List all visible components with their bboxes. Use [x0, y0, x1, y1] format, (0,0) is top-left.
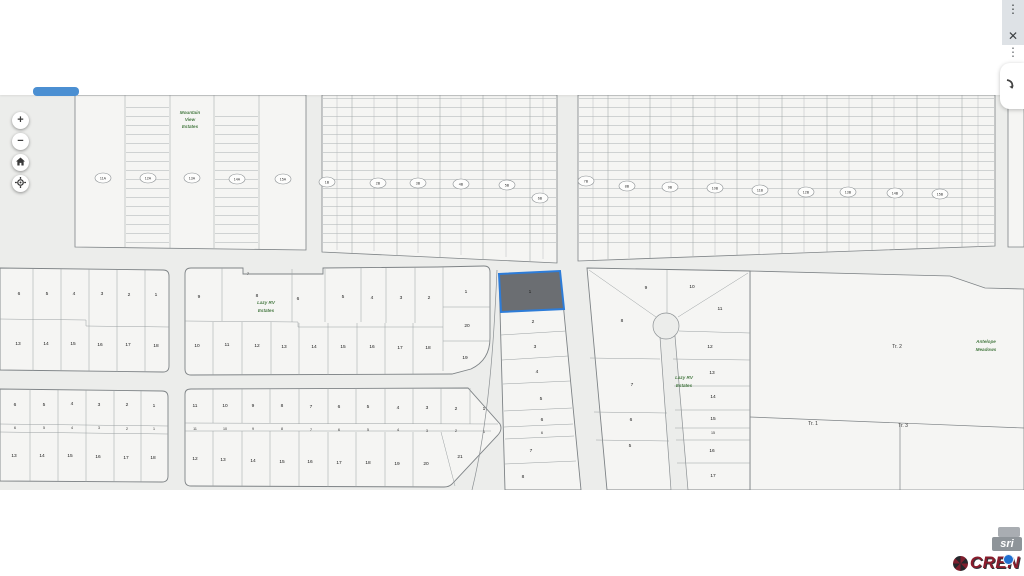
- strip-label: 11A: [100, 176, 107, 180]
- lot-number: 8: [621, 318, 624, 324]
- home-button[interactable]: [12, 154, 29, 171]
- subdivision-label: Antelope: [975, 339, 996, 344]
- lot-number: 6: [630, 417, 633, 423]
- lot-number: 14: [250, 458, 256, 464]
- lot-number: 14: [43, 341, 49, 347]
- side-panel-handle[interactable]: [1000, 63, 1024, 109]
- kebab-menu-button[interactable]: ⋮: [1007, 3, 1019, 15]
- lot-number: 7: [530, 448, 533, 454]
- lot-number: 13: [15, 341, 21, 347]
- home-icon: [16, 157, 25, 169]
- partial-toolbar-button[interactable]: [33, 87, 79, 96]
- lot-number: 6: [338, 404, 341, 410]
- strip-label: 15B: [937, 192, 944, 196]
- strip-label: 12A: [145, 176, 152, 180]
- strip-label: 8B: [625, 184, 630, 188]
- lot-number: 3: [534, 344, 537, 350]
- lot-number: 8: [522, 474, 525, 480]
- lot-number: 2: [126, 402, 129, 408]
- strip-label: 10B: [712, 186, 719, 190]
- lot-number: 10: [222, 403, 228, 409]
- lot-number: 3: [400, 295, 403, 301]
- lot-number: 9: [252, 427, 254, 431]
- lot-number: 9: [198, 294, 201, 300]
- lot-number: 15: [340, 344, 346, 350]
- strip-label: 14B: [892, 191, 899, 195]
- lot-number: 14: [710, 394, 716, 400]
- strip-label: 12B: [803, 190, 810, 194]
- lot-number: 5: [540, 396, 543, 402]
- lot-number: 17: [123, 455, 129, 461]
- subdivision-label: Mountain: [180, 110, 201, 115]
- lot-number: 11: [193, 427, 197, 431]
- lot-number: 1: [483, 430, 485, 434]
- lot-number: 6: [14, 426, 16, 430]
- lot-number: 18: [150, 455, 156, 461]
- lot-number: 5: [43, 402, 46, 408]
- strip-label: 4B: [459, 182, 464, 186]
- lot-number: 4: [371, 295, 374, 301]
- lot-number: 15: [70, 341, 76, 347]
- overflow-menu-button[interactable]: ⋮: [1007, 46, 1019, 58]
- lot-number: 17: [336, 460, 342, 466]
- lot-number: 1: [529, 289, 532, 295]
- lot-number: 14: [39, 453, 45, 459]
- lot-number: 15: [67, 453, 73, 459]
- lot-number: 5: [342, 294, 345, 300]
- lot-number: 1: [153, 403, 156, 409]
- lot-number: 2: [455, 429, 457, 433]
- strip-label: 11B: [757, 188, 764, 192]
- lot-number: 13: [281, 344, 287, 350]
- lot-number: 5: [367, 428, 369, 432]
- lot-number: 5: [629, 443, 632, 449]
- subdivision-label: View: [185, 117, 196, 122]
- locate-button[interactable]: [12, 175, 29, 192]
- lot-number: 14: [311, 344, 317, 350]
- app-window: 11A12A13A14A15A1B2B3B4B5B6B7B8B9B10B11B1…: [0, 0, 1024, 576]
- lot-number: 6: [18, 291, 21, 297]
- subdivision-label: Lazy RV: [257, 300, 276, 305]
- lot-number: 8: [281, 403, 284, 409]
- lot-number: 5: [367, 404, 370, 410]
- info-badge[interactable]: [1003, 554, 1014, 565]
- lot-number: 19: [462, 355, 468, 361]
- lot-number: 1: [483, 406, 486, 412]
- strip-label: 13A: [189, 176, 196, 180]
- lot-number: 16: [97, 342, 103, 348]
- lot-number: 2: [532, 319, 535, 325]
- subdivision-label: Estates: [258, 308, 275, 313]
- lot-number: 15: [711, 431, 715, 435]
- strip-label: 1B: [325, 180, 330, 184]
- lot-number: Tr. 3: [898, 423, 908, 429]
- bottom-panel: [0, 490, 1024, 576]
- subdivision-label: Estates: [676, 383, 693, 388]
- lot-number: 4: [71, 426, 73, 430]
- close-button[interactable]: ✕: [1008, 30, 1018, 42]
- strip-label: 2B: [376, 181, 381, 185]
- strip-label: 15A: [280, 177, 287, 181]
- strip-label: 3B: [416, 181, 421, 185]
- lot-number: 10: [194, 343, 200, 349]
- lot-number: 4: [397, 428, 399, 432]
- strip-label: 5B: [505, 183, 510, 187]
- lot-number: 5: [43, 426, 45, 430]
- lot-number: 20: [464, 323, 470, 329]
- lot-number: 17: [710, 473, 716, 479]
- lot-number: 3: [98, 402, 101, 408]
- lot-number: 7: [310, 404, 313, 410]
- lot-number: 3: [101, 291, 104, 297]
- zoom-out-button[interactable]: −: [12, 133, 29, 150]
- subdivision-label: Estates: [182, 124, 199, 129]
- collapse-arrow-icon: [1000, 77, 1015, 95]
- esri-attribution-tab: [998, 527, 1020, 537]
- lot-number: 4: [397, 405, 400, 411]
- map-controls: + −: [12, 112, 29, 192]
- lot-number: 11: [225, 342, 230, 348]
- lot-number: 1: [465, 289, 468, 295]
- lot-number: 11: [193, 403, 198, 409]
- subdivision-label: Meadows: [976, 347, 997, 352]
- lot-number: 19: [394, 461, 400, 467]
- lot-number: 4: [536, 369, 539, 375]
- window-controls: ⋮ ✕: [1002, 0, 1024, 45]
- lot-number: 11: [718, 306, 723, 312]
- lot-number: 12: [707, 344, 713, 350]
- lot-number: 16: [369, 344, 375, 350]
- lot-number: 3: [426, 405, 429, 411]
- lot-number: 10: [689, 284, 695, 290]
- lot-number: 15: [710, 416, 716, 422]
- lot-number: 16: [709, 448, 715, 454]
- esri-logo: sri: [992, 537, 1022, 551]
- lot-number: 6: [338, 428, 340, 432]
- lot-number: Tr. 2: [892, 344, 902, 350]
- lot-number: 21: [457, 454, 463, 460]
- lot-number: Tr. 1: [808, 421, 818, 427]
- lot-number: 6: [541, 431, 543, 435]
- lot-number: 8: [281, 427, 283, 431]
- lot-number: 12: [192, 456, 198, 462]
- lot-number: 1: [153, 427, 155, 431]
- strip-label: 14A: [234, 177, 241, 181]
- lot-number: 3: [426, 429, 428, 433]
- lot-number: 9: [252, 403, 255, 409]
- lot-number: 7: [310, 428, 312, 432]
- selected-parcel[interactable]: [499, 271, 564, 312]
- cren-globe-icon: [953, 556, 968, 571]
- lot-number: 13: [220, 457, 226, 463]
- strip-label: 9B: [668, 185, 673, 189]
- top-panel: [0, 0, 1024, 95]
- lot-number: 15: [279, 459, 285, 465]
- lot-number: 1: [155, 292, 158, 298]
- lot-number: 2: [455, 406, 458, 412]
- lot-number: 6: [14, 402, 17, 408]
- lot-number: 16: [95, 454, 101, 460]
- subdivision-label: Lazy RV: [675, 375, 694, 380]
- lot-number: 4: [73, 291, 76, 297]
- lot-number: 7: [247, 272, 249, 276]
- lot-number: 3: [98, 426, 100, 430]
- lot-number: 18: [365, 460, 371, 466]
- lot-number: 18: [153, 343, 159, 349]
- lot-number: 4: [71, 401, 74, 407]
- lot-number: 13: [709, 370, 715, 376]
- lot-number: 18: [425, 345, 431, 351]
- lot-number: 12: [254, 343, 260, 349]
- tract-parcels: [750, 271, 1024, 490]
- strip-label: 13B: [845, 190, 852, 194]
- lot-number: 13: [11, 453, 17, 459]
- lot-number: 7: [631, 382, 634, 388]
- lot-number: 16: [307, 459, 313, 465]
- lot-number: 2: [428, 295, 431, 301]
- lot-number: 6: [297, 296, 300, 302]
- lot-number: 9: [645, 285, 648, 291]
- strip-label: 7B: [584, 179, 589, 183]
- lot-number: 6: [541, 417, 544, 423]
- lot-number: 5: [46, 291, 49, 297]
- lot-number: 17: [125, 342, 131, 348]
- lot-number: 17: [397, 345, 403, 351]
- lot-number: 20: [423, 461, 429, 467]
- locate-icon: [15, 177, 26, 191]
- lot-number: 2: [128, 292, 131, 298]
- strip-label: 6B: [538, 196, 543, 200]
- lot-number: 8: [256, 293, 259, 299]
- lot-number: 10: [223, 427, 227, 431]
- lot-number: 2: [126, 427, 128, 431]
- zoom-in-button[interactable]: +: [12, 112, 29, 129]
